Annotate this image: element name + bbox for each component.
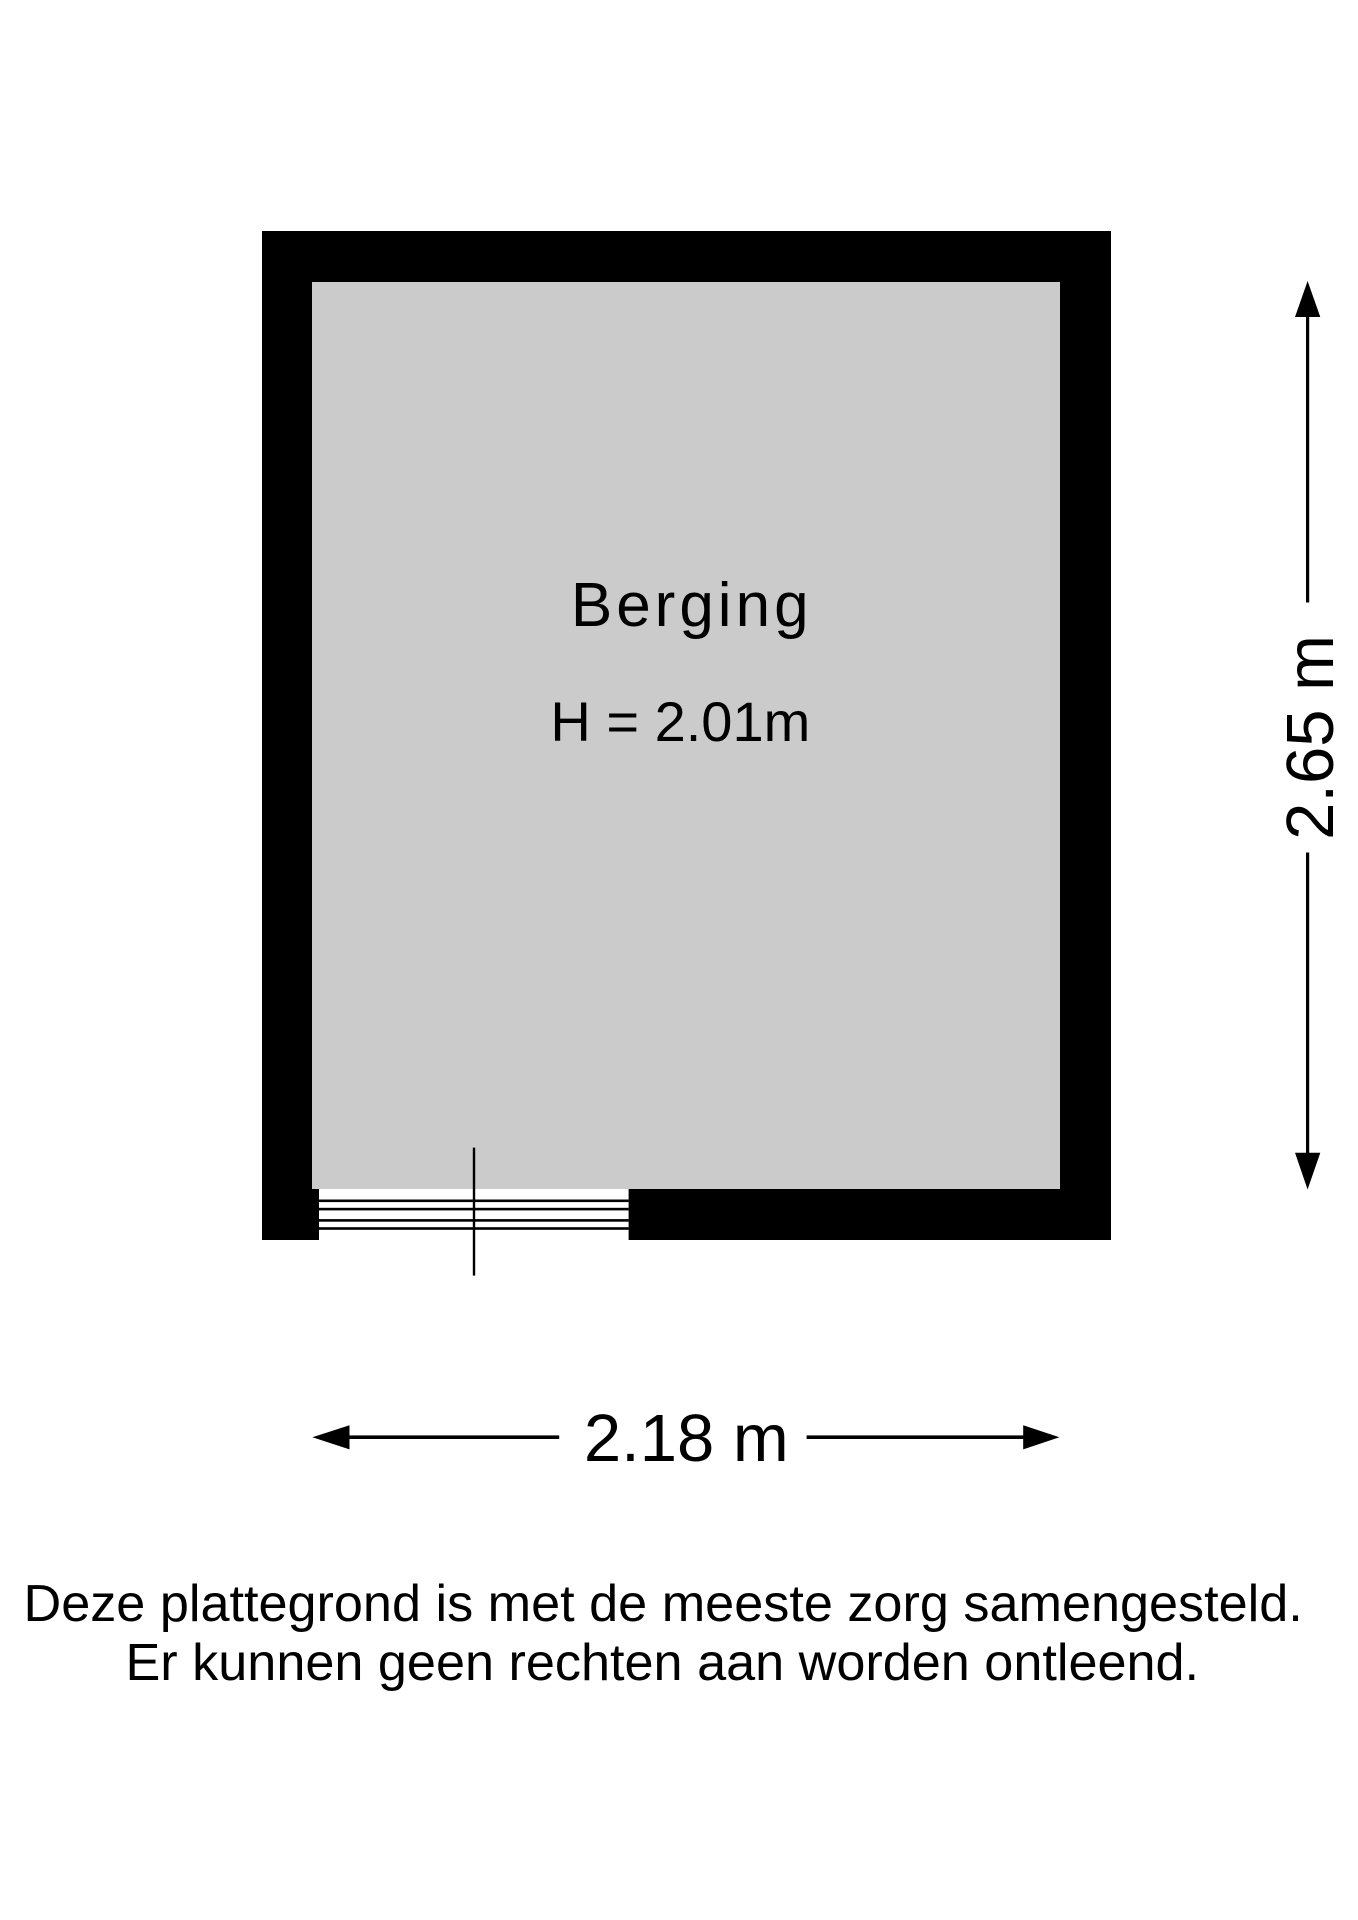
- svg-text:H = 2.01m: H = 2.01m: [550, 690, 810, 753]
- svg-text:Berging: Berging: [571, 571, 813, 640]
- svg-text:2.18 m: 2.18 m: [584, 1401, 789, 1476]
- svg-text:2.65 m: 2.65 m: [1273, 635, 1348, 840]
- svg-text:Er kunnen geen rechten aan wor: Er kunnen geen rechten aan worden ontlee…: [126, 1634, 1200, 1692]
- svg-text:Deze plattegrond is met de mee: Deze plattegrond is met de meeste zorg s…: [24, 1575, 1303, 1633]
